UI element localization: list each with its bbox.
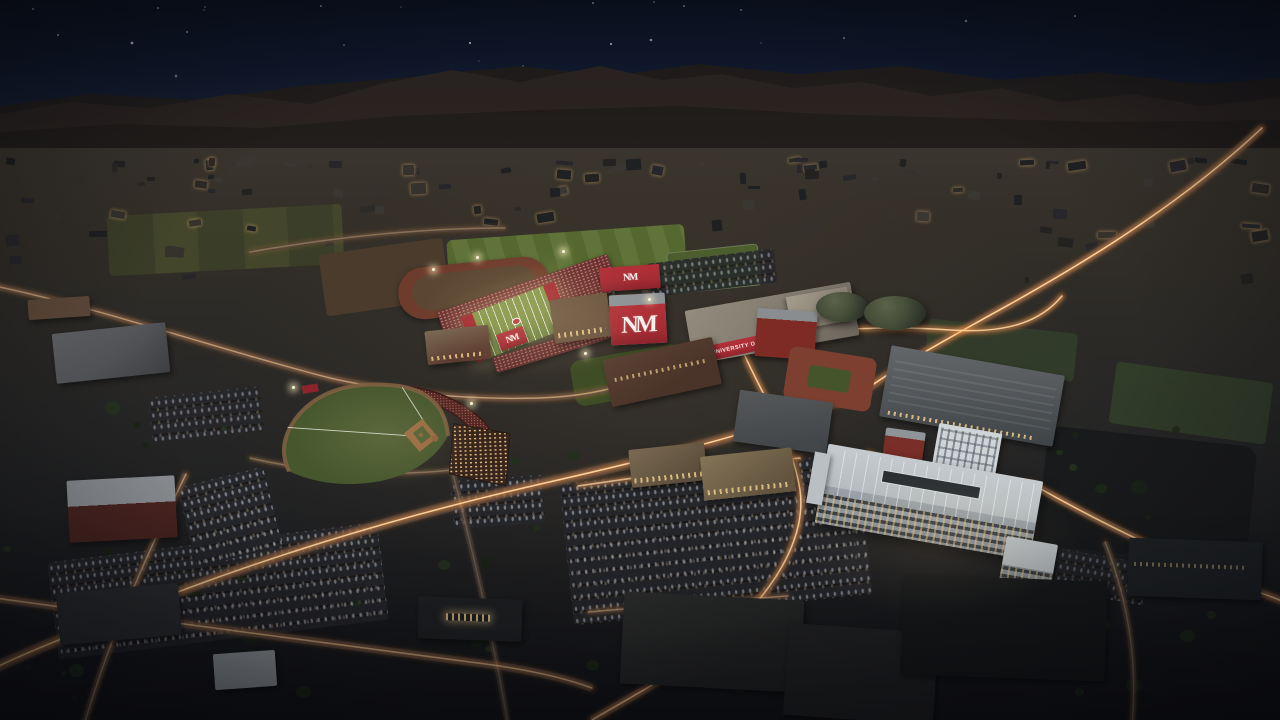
road: [250, 228, 505, 252]
monogram-wall: NM: [609, 304, 667, 346]
north-scoreboard: NM: [599, 264, 661, 292]
southwest-office: [56, 583, 182, 645]
practice-dome-west: [816, 292, 868, 322]
flood-light: [292, 386, 295, 389]
flood-light: [432, 268, 435, 271]
bank-lit-sign: [446, 613, 490, 622]
light-trail: [452, 470, 508, 720]
flood-light: [476, 256, 479, 259]
press-box-building: [549, 292, 613, 344]
flood-light: [470, 402, 473, 405]
factory-southeast: [900, 574, 1107, 681]
aerial-campus-scene: NM NM NM THE UNIVERSITY OF NEW MEXICO: [0, 0, 1280, 720]
scoreboard-monogram: NM: [623, 273, 638, 284]
office-building-west: [628, 442, 708, 488]
ballpark-building: [448, 422, 512, 488]
gate-windows: [431, 351, 485, 361]
press-box-windows: [558, 327, 606, 339]
flat-roof-building-center: [620, 591, 805, 692]
baseball-stadium: [256, 372, 518, 503]
practice-dome-east: [864, 296, 926, 330]
light-trail: [250, 228, 505, 252]
light-trail: [250, 228, 505, 252]
dark-office-southeast: [1127, 538, 1263, 601]
courtyard-lawn: [807, 365, 852, 393]
ballpark-videoboard: [302, 383, 319, 394]
light-trail: [250, 228, 505, 252]
flood-light: [648, 298, 651, 301]
wall-monogram: NM: [621, 312, 655, 338]
white-small-building: [213, 650, 277, 690]
west-gate-building: [424, 325, 491, 366]
flood-light: [584, 352, 587, 355]
monogram-wall-building: NM: [609, 293, 668, 346]
bank-building: [417, 596, 522, 642]
unm-monogram: NM: [505, 332, 520, 345]
southeast-office-windows: [1134, 562, 1244, 570]
maroon-warehouse: [66, 475, 177, 543]
flood-light: [562, 250, 565, 253]
gym-skylights: [614, 359, 705, 382]
